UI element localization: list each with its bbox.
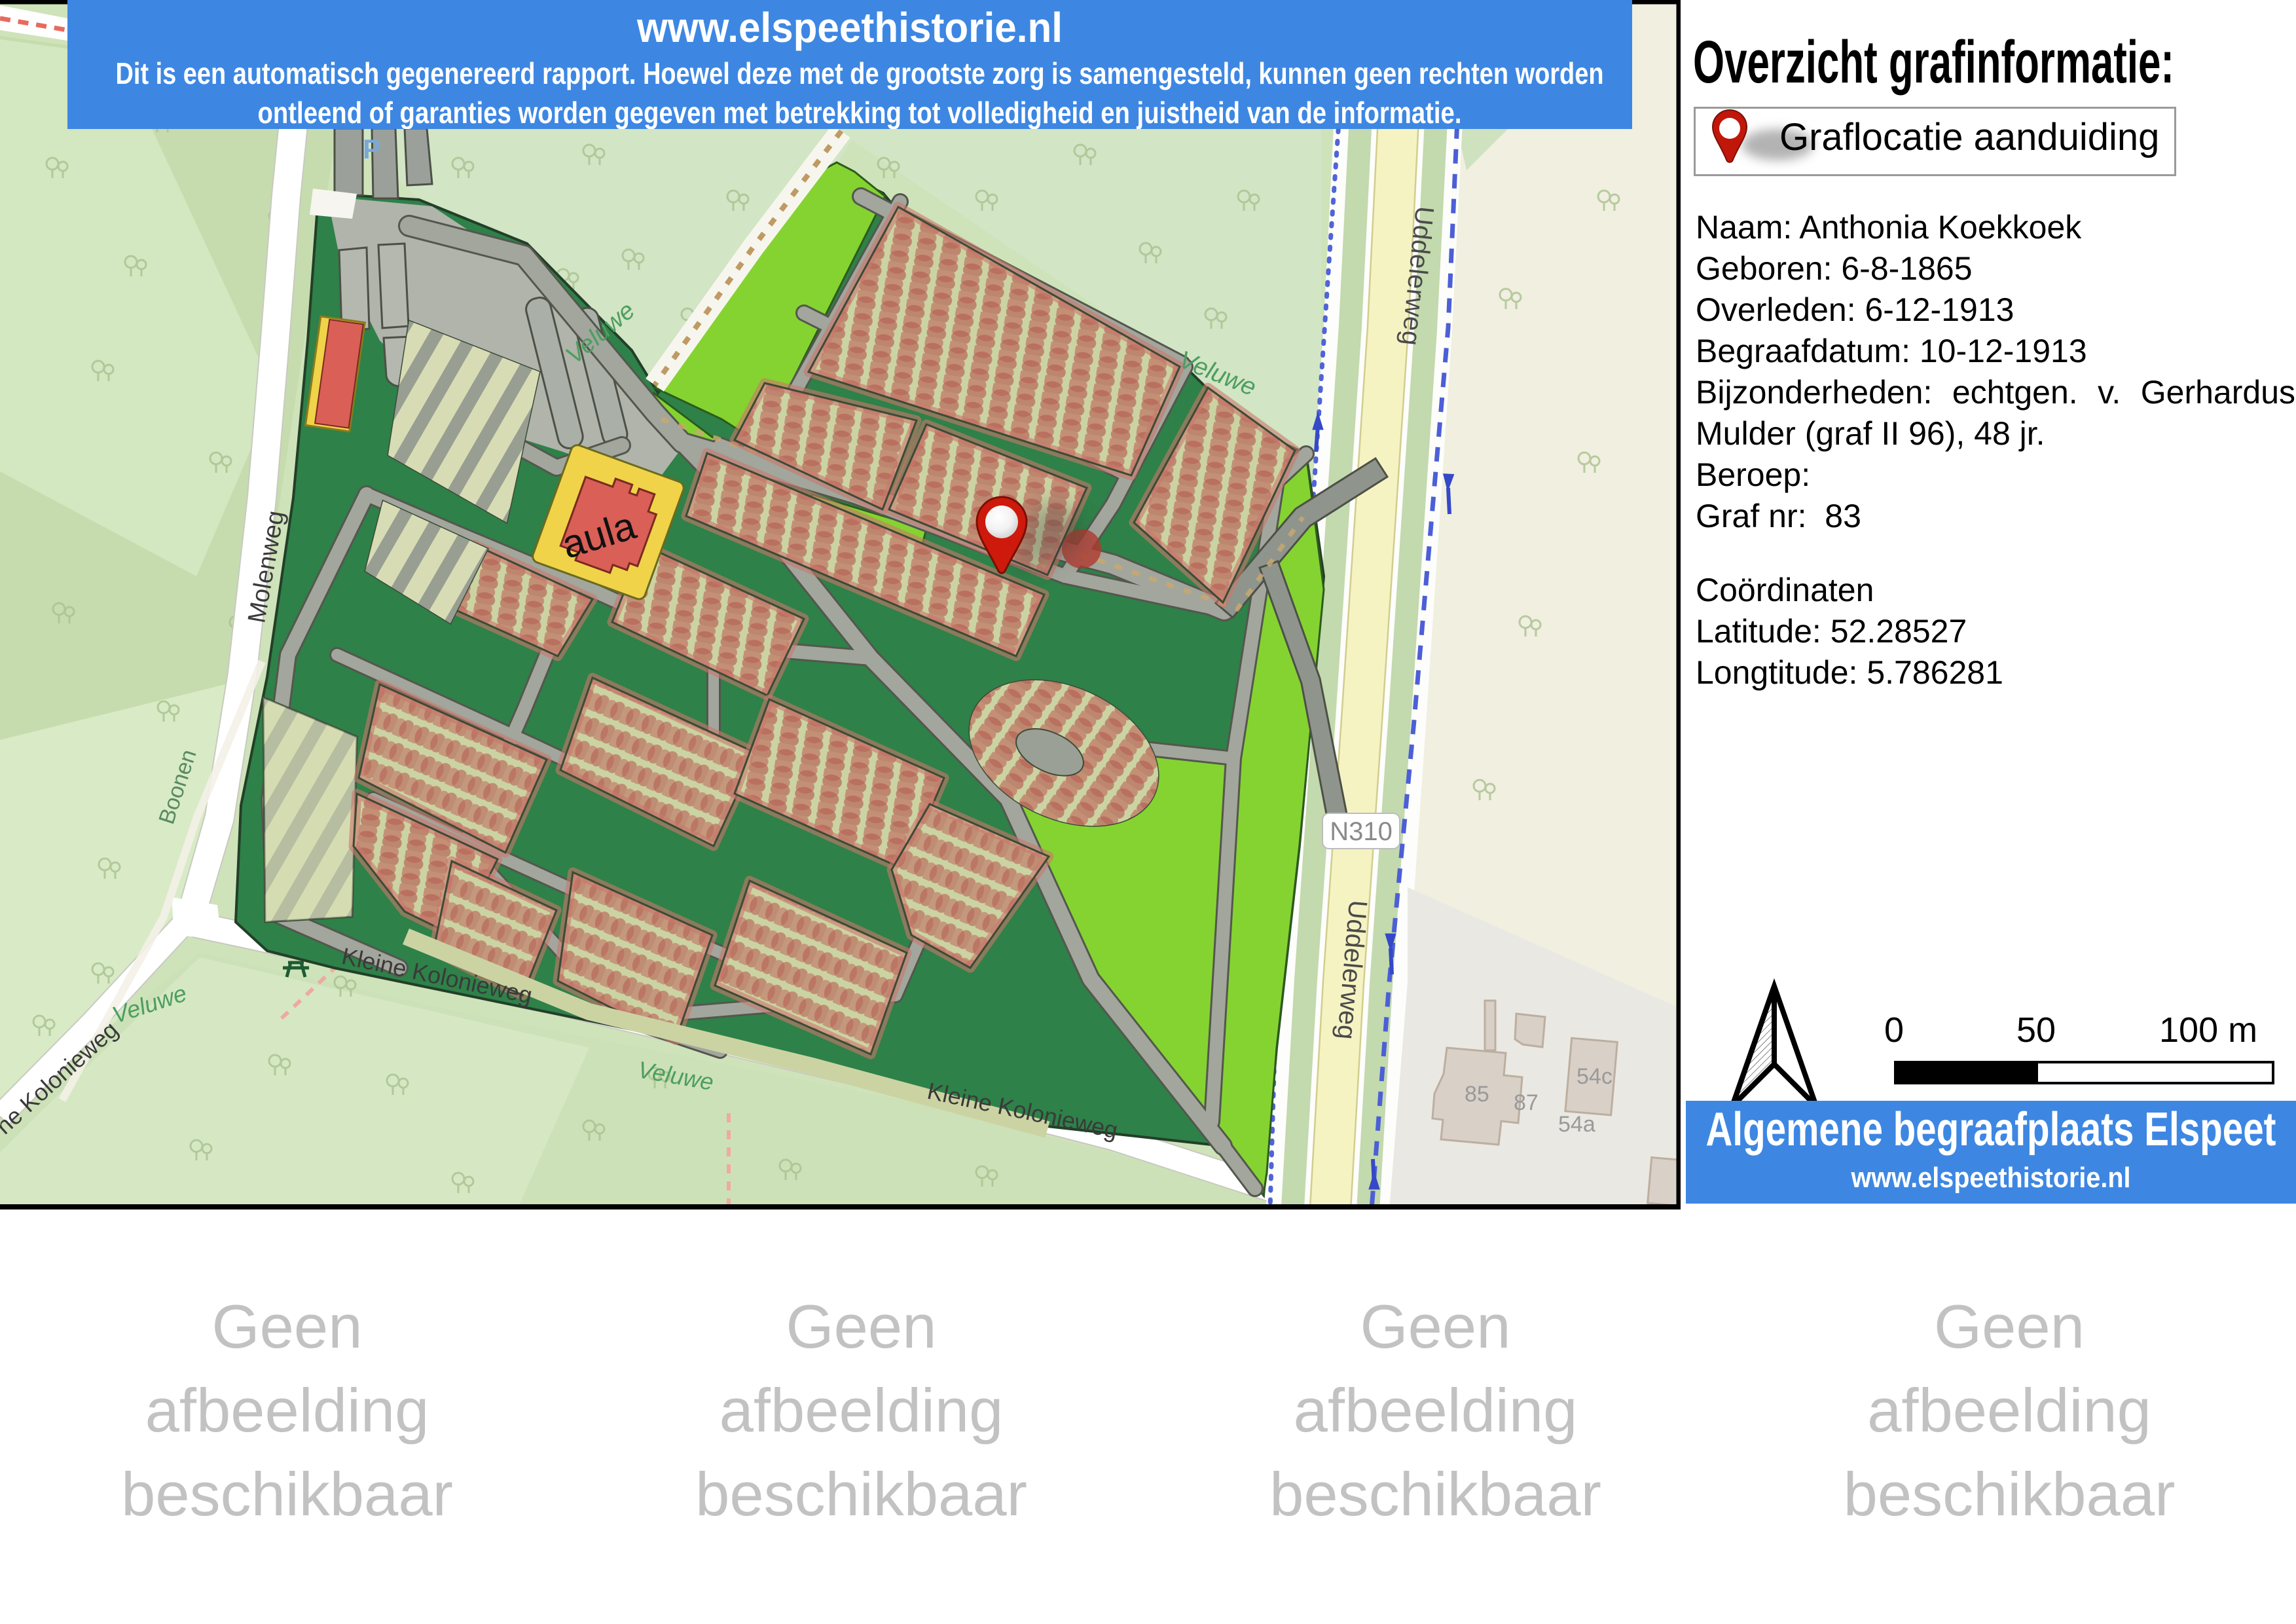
svg-text:ontleend of garanties worden g: ontleend of garanties worden gegeven met…: [258, 96, 1462, 129]
svg-text:www.elspeethistorie.nl: www.elspeethistorie.nl: [636, 4, 1063, 51]
svg-text:P: P: [363, 134, 381, 164]
svg-text:Overzicht grafinformatie:: Overzicht grafinformatie:: [1693, 29, 2174, 96]
svg-text:www.elspeethistorie.nl: www.elspeethistorie.nl: [1851, 1162, 2131, 1194]
svg-text:54c: 54c: [1576, 1064, 1613, 1089]
svg-text:54a: 54a: [1558, 1112, 1595, 1137]
svg-text:87: 87: [1514, 1090, 1539, 1115]
svg-text:85: 85: [1465, 1082, 1489, 1107]
svg-text:Algemene begraafplaats Elspeet: Algemene begraafplaats Elspeet: [1706, 1103, 2276, 1156]
svg-text:N310: N310: [1330, 817, 1393, 846]
svg-text:Dit is een automatisch gegener: Dit is een automatisch gegenereerd rappo…: [116, 56, 1604, 90]
